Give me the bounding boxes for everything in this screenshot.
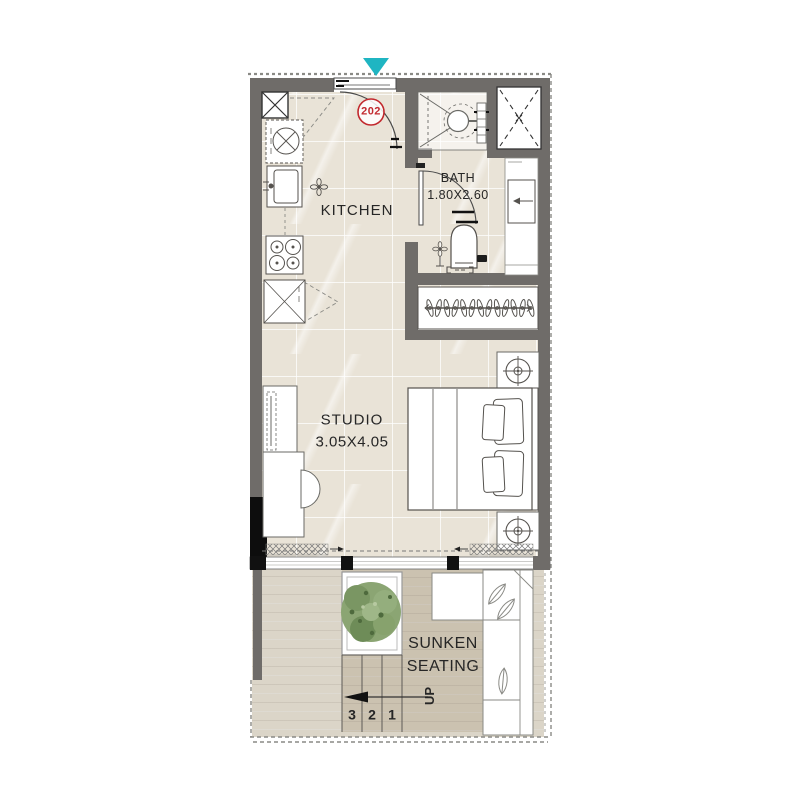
step-number: 1 bbox=[388, 706, 396, 725]
entrance-marker-icon bbox=[363, 58, 389, 76]
sunken-line1: SUNKEN bbox=[408, 635, 478, 652]
room-label-sunken-seating: SUNKEN SEATING bbox=[407, 632, 480, 678]
wall bbox=[250, 92, 262, 567]
bath-name: BATH bbox=[441, 171, 475, 185]
room-label-studio: STUDIO 3.05X4.05 bbox=[316, 409, 389, 452]
step-number: 2 bbox=[368, 706, 376, 725]
unit-number-badge: 202 bbox=[361, 105, 381, 120]
wall bbox=[418, 148, 432, 158]
stairs-direction-label: UP bbox=[421, 687, 439, 705]
studio-dimensions: 3.05X4.05 bbox=[316, 433, 389, 450]
wall bbox=[405, 330, 550, 340]
wall bbox=[405, 273, 550, 285]
studio-name: STUDIO bbox=[321, 411, 384, 428]
sunken-line2: SEATING bbox=[407, 658, 480, 675]
wall bbox=[253, 567, 262, 680]
step-number: 3 bbox=[348, 706, 356, 725]
wall bbox=[405, 92, 418, 168]
room-label-bath: BATH 1.80X2.60 bbox=[427, 170, 489, 204]
room-label-kitchen: KITCHEN bbox=[321, 201, 394, 221]
wall bbox=[250, 78, 334, 92]
wall bbox=[396, 78, 550, 92]
tile-floor-studio-kitchen-bath bbox=[262, 92, 538, 557]
wall bbox=[487, 148, 550, 158]
floor-plan-canvas: 202 KITCHEN BATH 1.80X2.60 STUDIO 3.05X4… bbox=[0, 0, 800, 800]
bath-dimensions: 1.80X2.60 bbox=[427, 188, 489, 202]
wall bbox=[538, 92, 550, 557]
structural-column bbox=[250, 497, 267, 567]
